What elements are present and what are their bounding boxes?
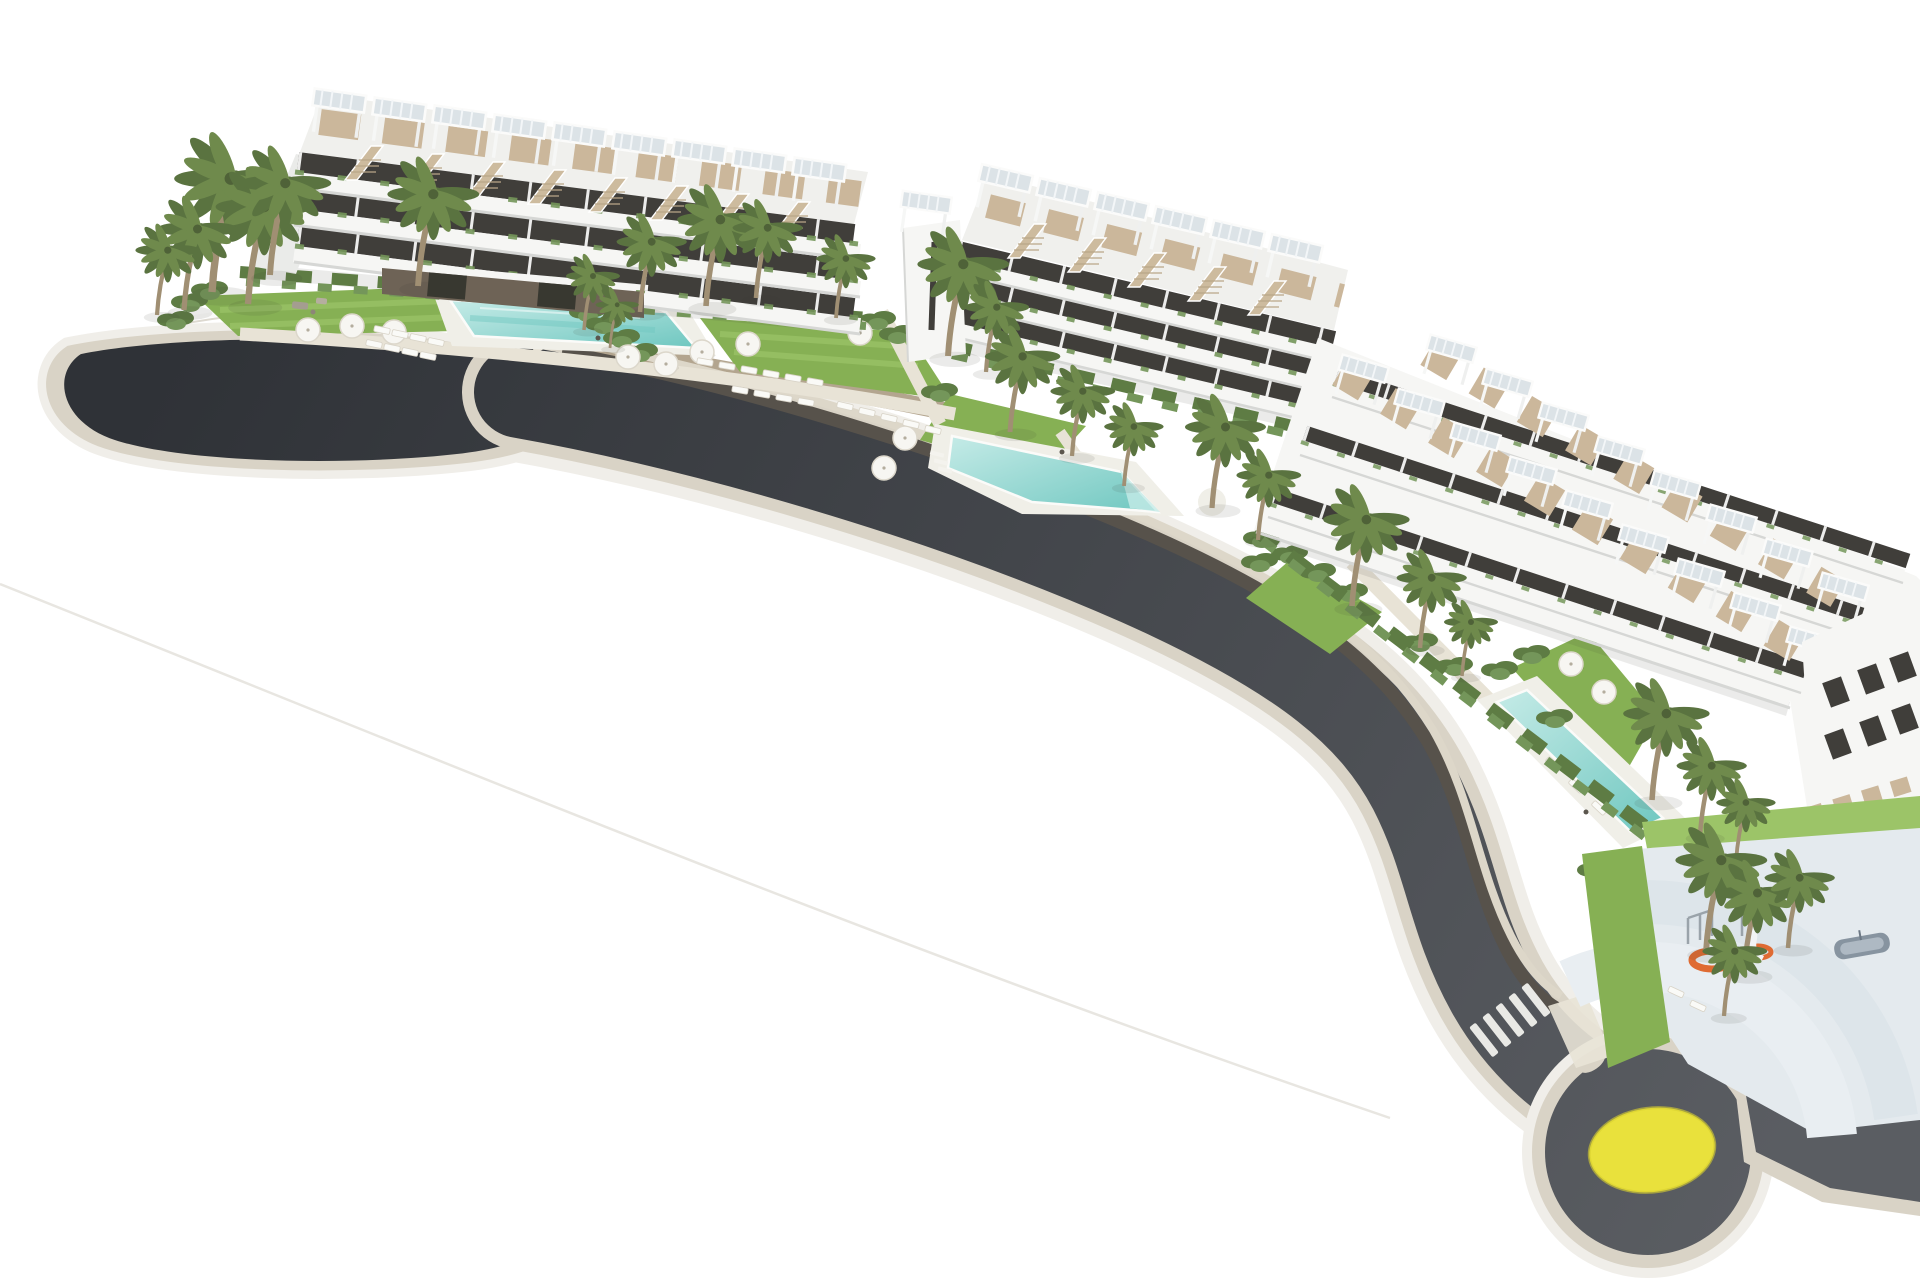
scene-canvas: Aerial 3D architectural rendering of a w…	[0, 0, 1920, 1280]
aerial-render-figure: Aerial 3D architectural rendering of a w…	[0, 0, 1920, 1280]
